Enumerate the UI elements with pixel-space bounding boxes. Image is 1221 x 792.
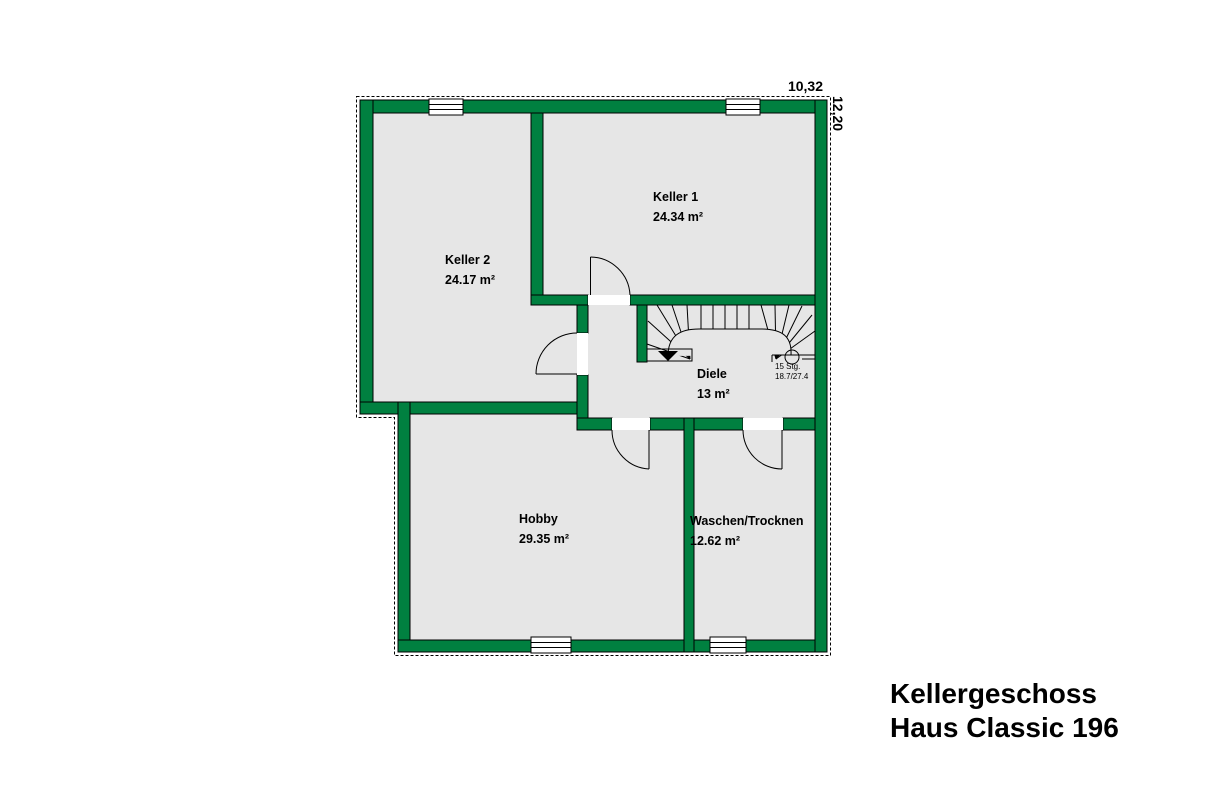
room-name: Keller 2 [445, 250, 495, 270]
room-area: 13 m² [697, 384, 730, 404]
room-area: 29.35 m² [519, 529, 569, 549]
room-name: Keller 1 [653, 187, 703, 207]
wall-diele-bottom-c [783, 418, 815, 430]
wall-diele-bottom-a [577, 418, 612, 430]
window-hobby [531, 637, 571, 653]
plan-title: Kellergeschoss Haus Classic 196 [890, 677, 1119, 745]
wall-right [815, 100, 827, 652]
wall-keller1-bottom-b [630, 295, 815, 305]
room-label-keller2: Keller 2 24.17 m² [445, 250, 495, 290]
room-name: Hobby [519, 509, 569, 529]
dimension-width: 10,32 [786, 79, 823, 94]
window-waschen [710, 637, 746, 653]
window-keller1 [726, 99, 760, 115]
wall-keller2-diele-a [577, 305, 588, 333]
wall-diele-bottom-b [650, 418, 743, 430]
stairs-rise-run: 18.7/27.4 [775, 372, 808, 382]
wall-left-lower [398, 402, 410, 652]
room-area: 24.17 m² [445, 270, 495, 290]
dimension-height: 12,20 [830, 96, 845, 131]
window-keller2 [429, 99, 463, 115]
floor-plan-drawing [0, 0, 1221, 792]
room-name: Waschen/Trocknen [690, 511, 803, 531]
room-area: 12.62 m² [690, 531, 803, 551]
wall-stair-left [637, 305, 647, 362]
plan-title-line2: Haus Classic 196 [890, 711, 1119, 745]
plan-title-line1: Kellergeschoss [890, 677, 1119, 711]
room-label-diele: Diele 13 m² [697, 364, 730, 404]
wall-keller1-bottom-a [531, 295, 588, 305]
room-name: Diele [697, 364, 730, 384]
stairs-step-count: 15 Stg. [775, 362, 808, 372]
wall-left-upper [360, 100, 373, 414]
room-area: 24.34 m² [653, 207, 703, 227]
floor [360, 100, 827, 652]
floor-plan-canvas: Keller 1 24.34 m² Keller 2 24.17 m² Diel… [0, 0, 1221, 792]
room-label-keller1: Keller 1 24.34 m² [653, 187, 703, 227]
wall-bottom [398, 640, 827, 652]
room-label-waschen: Waschen/Trocknen 12.62 m² [690, 511, 803, 551]
wall-keller2-keller1 [531, 113, 543, 295]
wall-keller2-bottom [360, 402, 588, 414]
stairs-note: 15 Stg. 18.7/27.4 [775, 362, 808, 381]
room-label-hobby: Hobby 29.35 m² [519, 509, 569, 549]
